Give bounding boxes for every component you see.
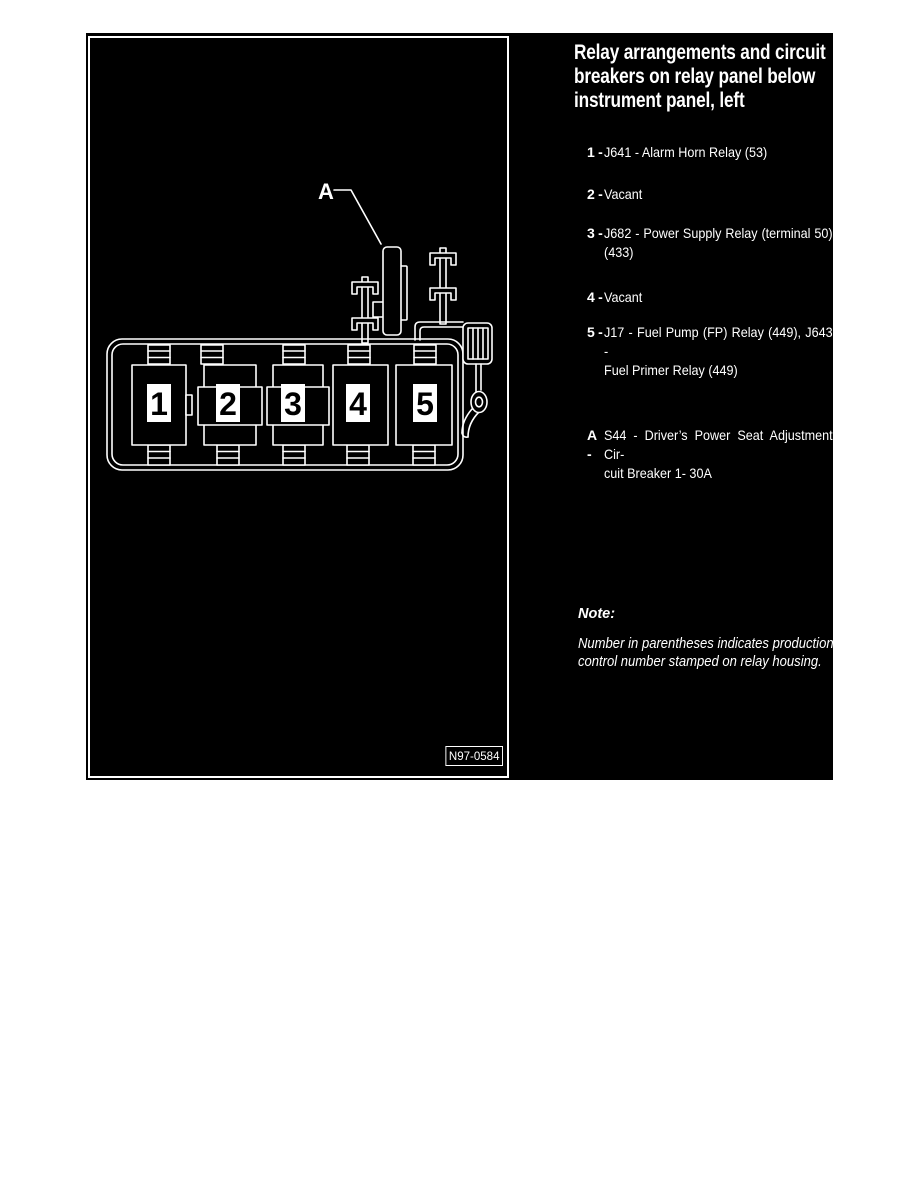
relay-panel-drawing: A 1 2 3 4 5: [90, 38, 507, 776]
side-connector: [463, 323, 492, 364]
legend-item-a: A - S44 - Driver’s Power Seat Adjustment…: [587, 426, 833, 483]
marker-a-leader-line: [334, 190, 381, 244]
relay-3-number: 3: [284, 386, 302, 422]
legend-item-text: S44 - Driver’s Power Seat Adjustment Cir…: [604, 426, 833, 464]
legend-item-number: 5 -: [587, 323, 604, 342]
legend-item-2: 2 - Vacant: [587, 185, 833, 204]
legend-item-1: 1 - J641 - Alarm Horn Relay (53): [587, 143, 833, 162]
note-heading: Note:: [578, 605, 615, 624]
legend-item-number: 4 -: [587, 288, 604, 307]
relay-panel-diagram: A 1 2 3 4 5 N97-0584: [88, 36, 509, 778]
page-title: Relay arrangements and circuit breakers …: [574, 41, 823, 113]
legend-item-number: 1 -: [587, 143, 604, 162]
relay-bottom-tabs: [148, 445, 435, 465]
page-title-line: breakers on relay panel below: [574, 65, 823, 89]
legend-item-text: J641 - Alarm Horn Relay (53): [604, 143, 833, 162]
page-title-line: instrument panel, left: [574, 89, 823, 113]
manual-page: { "colors": { "page_background": "#fffff…: [0, 0, 918, 1188]
right-clip-bracket: [430, 248, 456, 324]
relay-2-number: 2: [219, 386, 237, 422]
legend-column: Relay arrangements and circuit breakers …: [574, 33, 833, 780]
circuit-breaker-a-shape: [383, 247, 401, 335]
page-title-line: Relay arrangements and circuit: [574, 41, 823, 65]
legend-item-text: J682 - Power Supply Relay (terminal 50): [604, 224, 833, 243]
legend-item-text: Vacant: [604, 185, 833, 204]
legend-item-5: 5 - J17 - Fuel Pump (FP) Relay (449), J6…: [587, 323, 833, 380]
relay-panel-page: A 1 2 3 4 5 N97-0584 Relay arrangements …: [86, 33, 833, 780]
legend-item-number: 2 -: [587, 185, 604, 204]
note-line: Number in parentheses indicates producti…: [578, 635, 834, 653]
figure-number: N97-0584: [449, 749, 500, 763]
relay-5-number: 5: [416, 386, 434, 422]
marker-a-label: A: [318, 179, 334, 204]
legend-item-number: A -: [587, 426, 604, 464]
legend-item-4: 4 - Vacant: [587, 288, 833, 307]
relay-1-number: 1: [150, 386, 168, 422]
legend-item-text: Fuel Primer Relay (449): [604, 361, 833, 380]
legend-item-number: 3 -: [587, 224, 604, 243]
legend-item-text: J17 - Fuel Pump (FP) Relay (449), J643 -: [604, 323, 833, 361]
figure-number-box: N97-0584: [445, 746, 503, 766]
legend-item-3: 3 - J682 - Power Supply Relay (terminal …: [587, 224, 833, 262]
note-paragraph: Number in parentheses indicates producti…: [578, 635, 834, 671]
relay-top-tabs: [148, 345, 436, 364]
mounting-eyelet: [462, 364, 487, 437]
relay-4-number: 4: [349, 386, 367, 422]
note-line: control number stamped on relay housing.: [578, 653, 834, 671]
legend-item-text: cuit Breaker 1- 30A: [604, 464, 833, 483]
legend-item-text: Vacant: [604, 288, 833, 307]
legend-item-text: (433): [604, 243, 833, 262]
